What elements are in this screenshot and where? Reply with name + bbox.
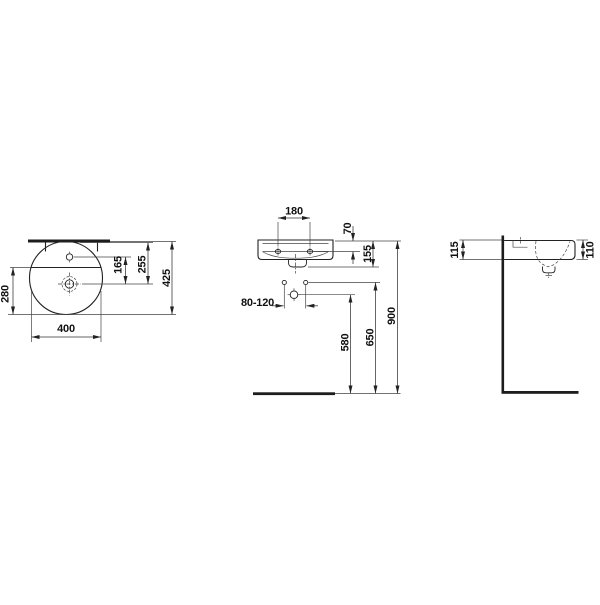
dim-80-120-label: 80-120 (241, 297, 274, 309)
bowl-hidden-line (536, 241, 570, 267)
washbasin-top-view: 280 425 165 255 400 (0, 240, 176, 343)
dim-255-label: 255 (137, 256, 149, 274)
dim-70-label: 70 (342, 223, 354, 235)
dim-900-label: 900 (386, 307, 398, 325)
dim-110-label: 110 (585, 241, 597, 258)
dim-650-label: 650 (365, 329, 377, 347)
drain-outlet-front (289, 260, 307, 268)
dim-165-label: 165 (113, 256, 125, 274)
dim-400-label: 400 (57, 323, 75, 335)
dim-580-label: 580 (340, 334, 352, 352)
washbasin-side-view: 115 110 (449, 236, 597, 394)
technical-drawing-canvas: 280 425 165 255 400 180 70 155 (0, 0, 600, 600)
dim-155-label: 155 (362, 245, 374, 263)
washbasin-dimension-drawing: 280 425 165 255 400 180 70 155 (0, 0, 600, 600)
tap-hole (66, 254, 72, 260)
dim-280-label: 280 (0, 285, 12, 303)
washbasin-front-view: 180 70 155 80-120 580 650 900 (241, 206, 401, 396)
dim-115-label: 115 (449, 241, 461, 258)
dim-180-label: 180 (285, 206, 303, 218)
fixing-hole-left (282, 280, 286, 284)
basin-side-outline (504, 241, 575, 260)
floor-line-front-view (253, 392, 335, 395)
basin-outline-circle (30, 242, 103, 315)
floor-line-side-view (502, 391, 579, 394)
wall-drain-mark (290, 291, 298, 299)
dim-425-label: 425 (161, 269, 173, 287)
wall-line-side-view (502, 236, 505, 393)
drain-outlet-side (543, 267, 556, 273)
fixing-hole-right (304, 280, 308, 284)
